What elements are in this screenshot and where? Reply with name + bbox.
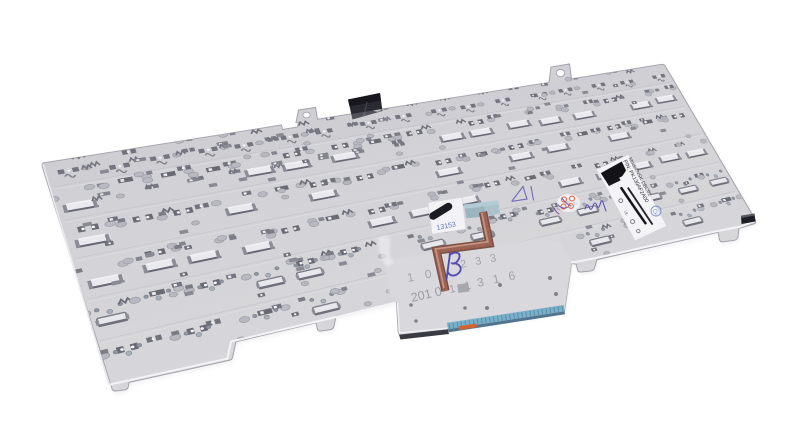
svg-text:Q: Q [653,210,658,216]
